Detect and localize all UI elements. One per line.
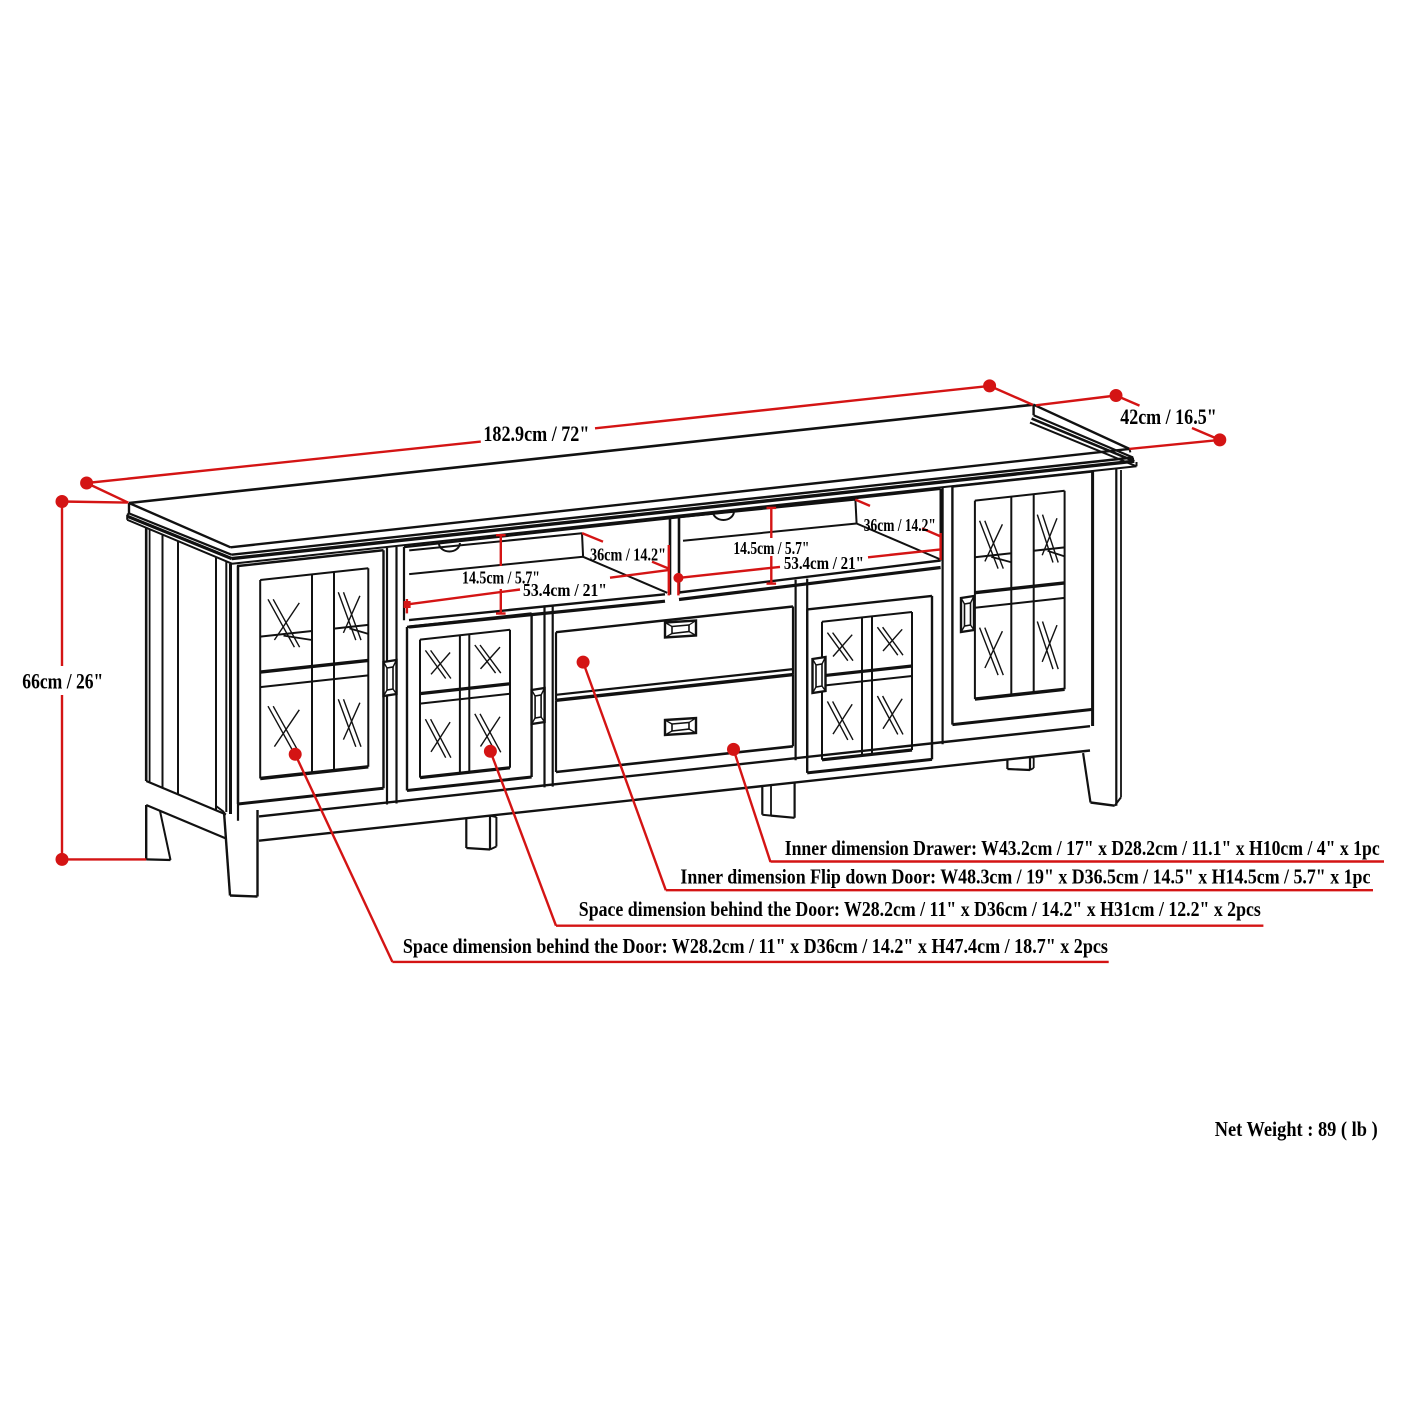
svg-text:Inner dimension Flip down Door: Inner dimension Flip down Door: W48.3cm … — [680, 865, 1370, 889]
svg-text:Space dimension behind the Doo: Space dimension behind the Door: W28.2cm… — [403, 934, 1108, 958]
svg-text:53.4cm / 21": 53.4cm / 21" — [523, 580, 607, 600]
svg-text:66cm / 26": 66cm / 26" — [22, 669, 103, 694]
svg-text:Space dimension behind the Doo: Space dimension behind the Door: W28.2cm… — [579, 897, 1261, 921]
svg-text:42cm / 16.5": 42cm / 16.5" — [1120, 404, 1217, 429]
svg-text:36cm / 14.2": 36cm / 14.2" — [590, 544, 666, 564]
svg-text:36cm / 14.2": 36cm / 14.2" — [864, 515, 936, 535]
svg-text:53.4cm / 21": 53.4cm / 21" — [784, 553, 864, 573]
svg-text:Net Weight : 89 ( lb ): Net Weight : 89 ( lb ) — [1215, 1117, 1378, 1141]
svg-text:182.9cm / 72": 182.9cm / 72" — [483, 421, 589, 446]
svg-text:Inner dimension Drawer: W43.2c: Inner dimension Drawer: W43.2cm / 17" x … — [785, 836, 1380, 860]
